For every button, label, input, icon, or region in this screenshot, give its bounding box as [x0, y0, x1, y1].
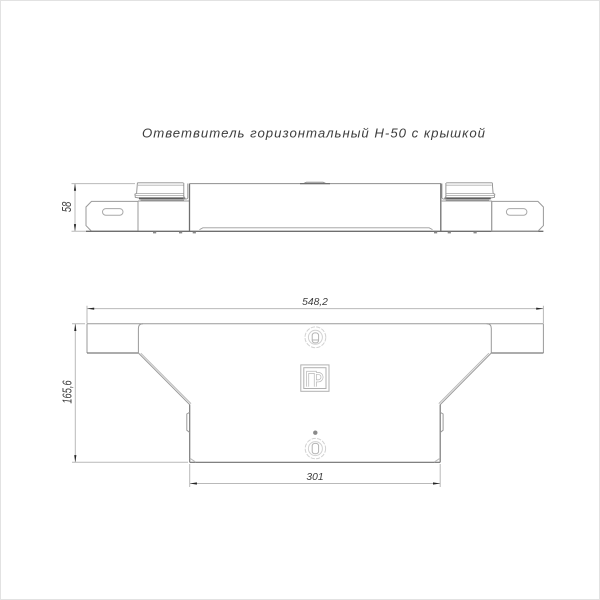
svg-text:Ответвитель горизонтальный Н-5: Ответвитель горизонтальный Н-50 с крышко…	[142, 126, 486, 141]
svg-text:165,6: 165,6	[61, 380, 75, 404]
svg-text:548,2: 548,2	[302, 297, 328, 308]
svg-text:301: 301	[306, 472, 323, 483]
svg-text:58: 58	[61, 201, 75, 212]
